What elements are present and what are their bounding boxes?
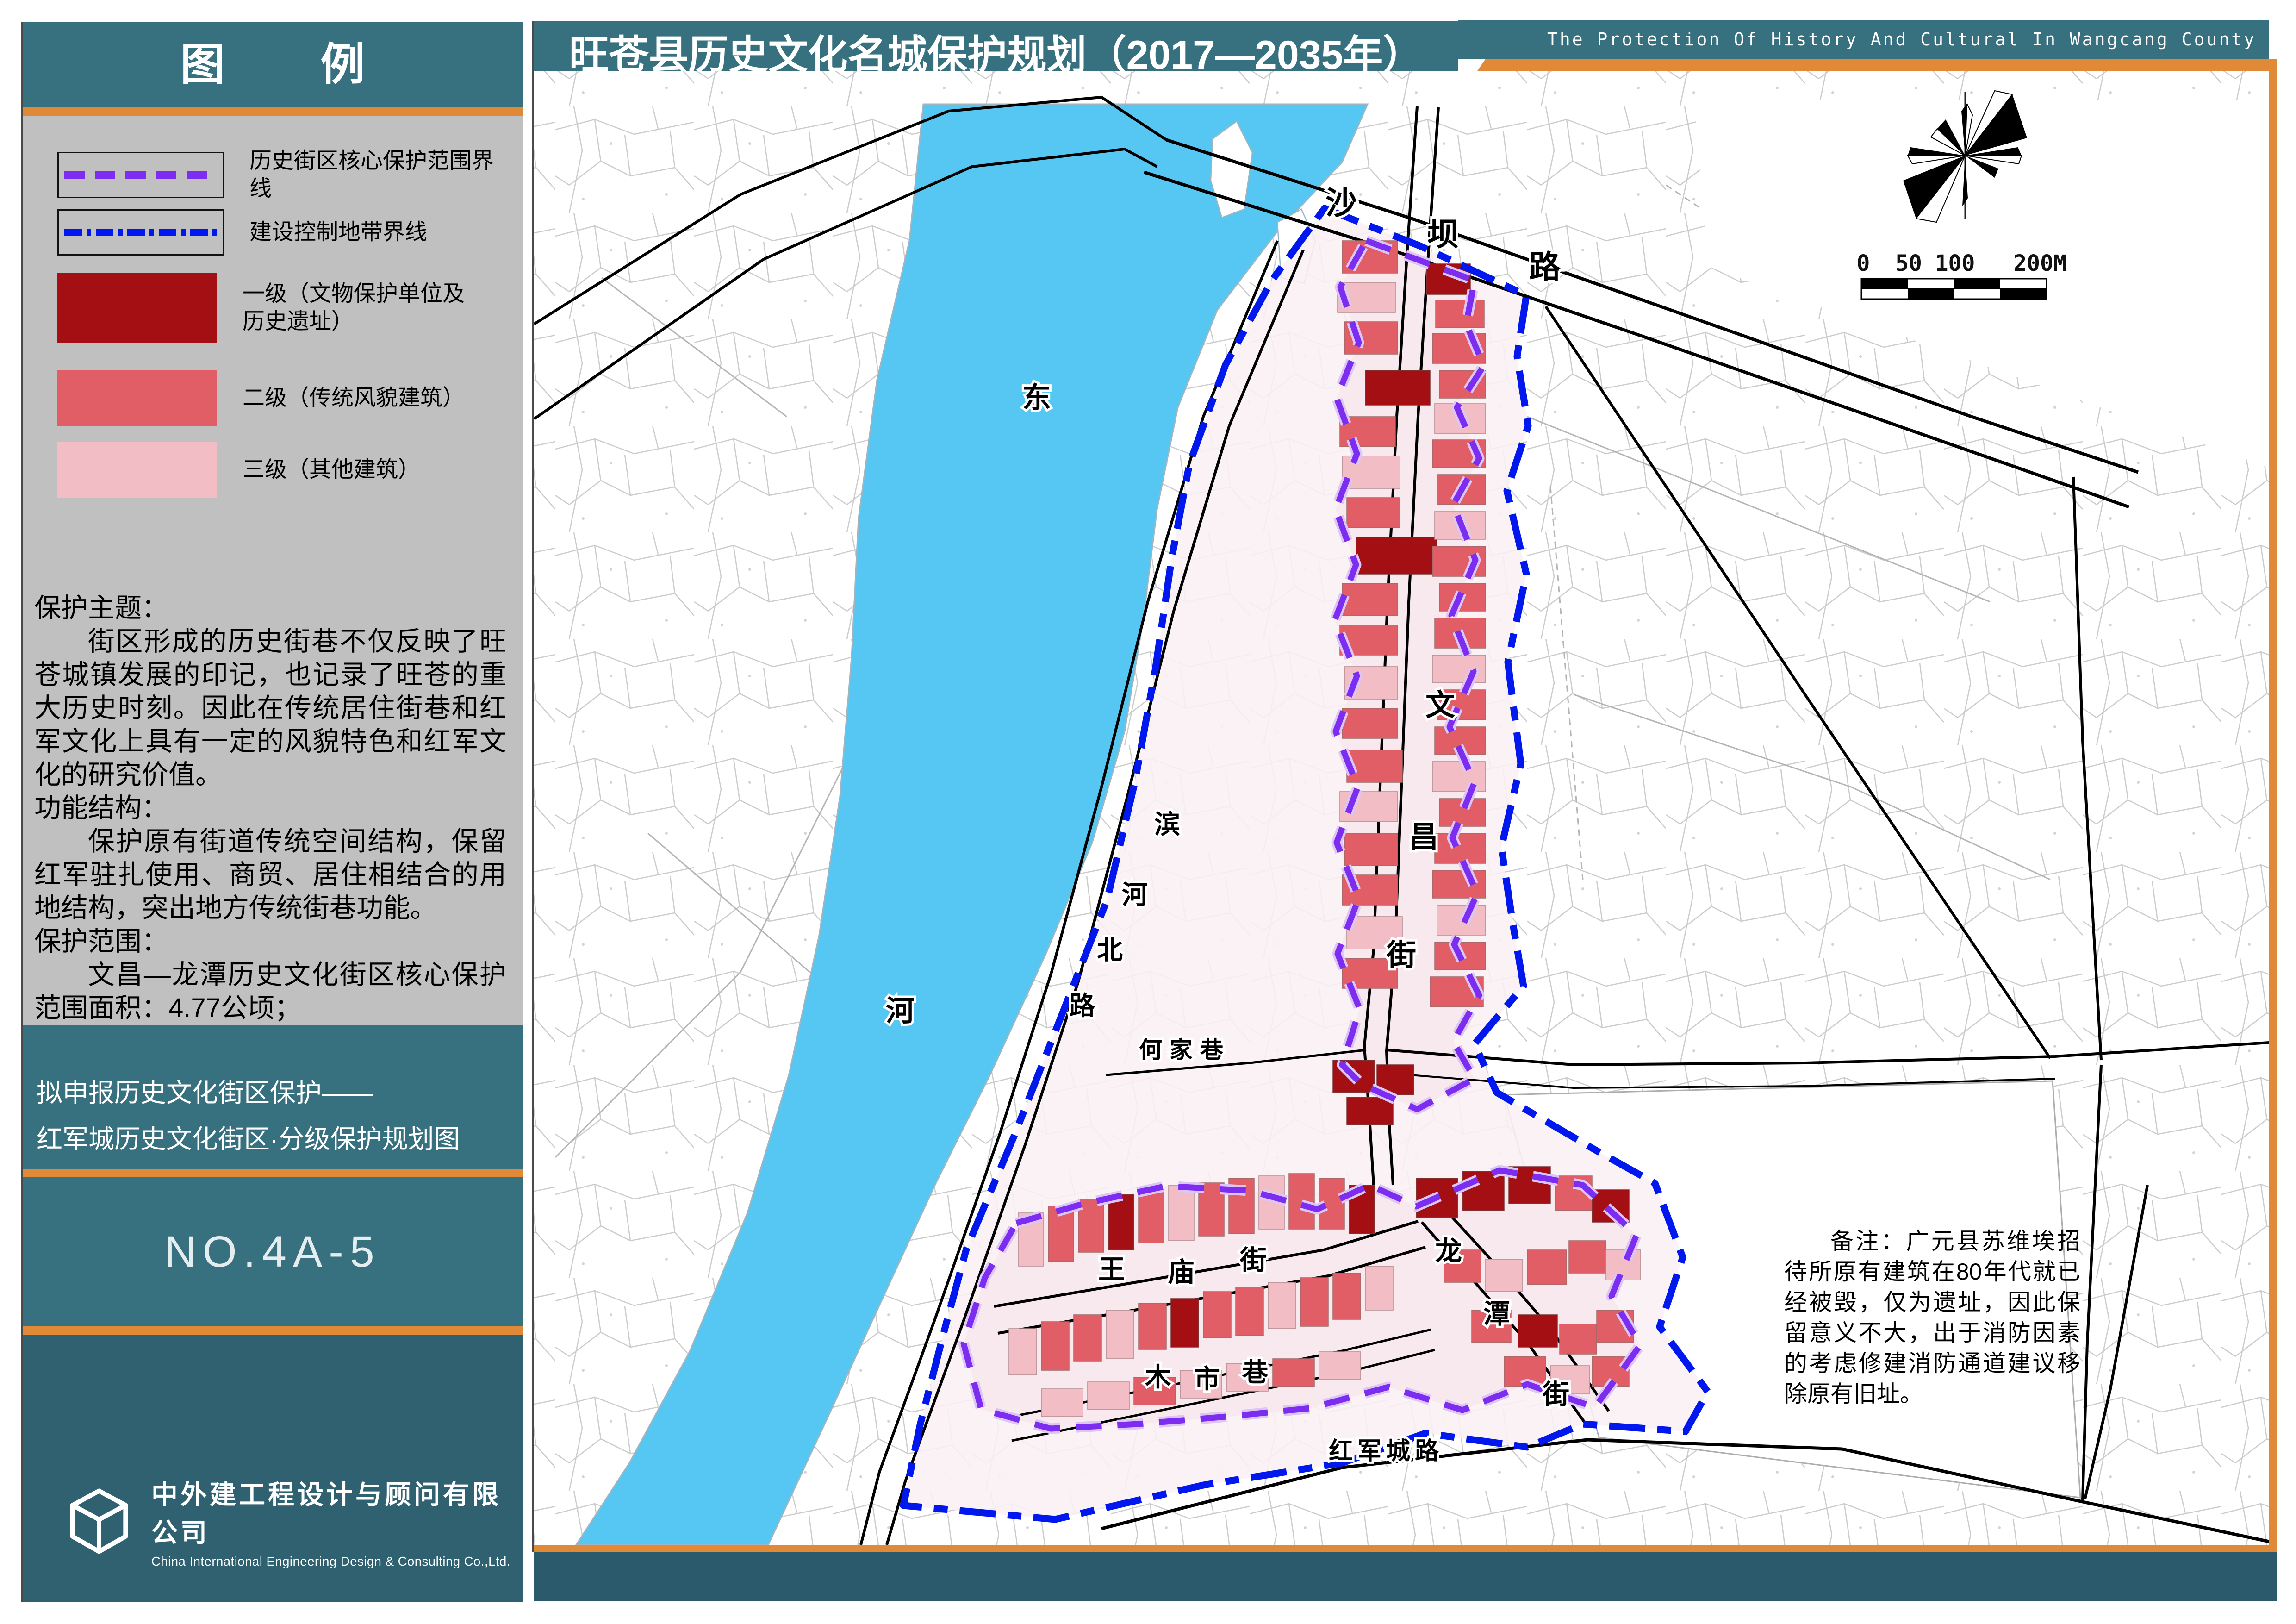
street-label: 街: [1239, 1245, 1267, 1275]
legend-item-label: 三级（其他建筑）: [243, 456, 420, 484]
street-label: 巷: [1242, 1358, 1269, 1387]
footer-bar: [534, 1552, 2277, 1601]
section-paragraph: 街区形成的历史街巷不仅反映了旺苍城镇发展的印记，也记录了旺苍的重大历史时刻。因此…: [34, 625, 506, 792]
street-label: 街: [1386, 938, 1416, 972]
street-label: 河: [1122, 880, 1148, 909]
project-line2: 红军城历史文化街区·分级保护规划图: [37, 1116, 523, 1162]
company-box: 中外建工程设计与顾问有限公司 China International Engin…: [23, 1335, 523, 1602]
legend-item-label: 一级（文物保护单位及历史遗址）: [243, 280, 483, 336]
section-heading: 保护主题：: [34, 592, 506, 625]
section-heading: 功能结构：: [34, 792, 506, 825]
street-label: 昌: [1409, 820, 1438, 854]
orange-divider: [23, 1169, 523, 1177]
street-label: 红军城路: [1329, 1438, 1444, 1465]
company-name-cn: 中外建工程设计与顾问有限公司: [151, 1474, 523, 1549]
project-line1: 拟申报历史文化街区保护——: [37, 1070, 523, 1116]
map-bottom-border: [534, 1545, 2277, 1552]
street-label: 路: [1069, 991, 1095, 1020]
street-label: 北: [1097, 936, 1123, 965]
level3-swatch-icon: [57, 442, 217, 498]
project-title-box: 拟申报历史文化街区保护—— 红军城历史文化街区·分级保护规划图: [23, 1025, 523, 1169]
legend-item-control-boundary: 建设控制地带界线: [57, 209, 427, 256]
street-label: 沙: [1325, 186, 1357, 221]
legend-item-label: 二级（传统风貌建筑）: [243, 384, 465, 412]
street-label: 街: [1542, 1380, 1569, 1410]
map-title-en: The Protection Of History And Cultural I…: [1458, 20, 2269, 59]
legend-title: 图 例: [23, 22, 523, 107]
sheet-number: NO.4A-5: [23, 1177, 523, 1326]
legend-sidebar: 图 例 历史街区核心保护范围界线 建设控制地带界线 一级（文物保护单位及历史遗址…: [21, 22, 521, 1602]
street-label: 滨: [1154, 810, 1180, 839]
company-name-en: China International Engineering Design &…: [151, 1554, 523, 1569]
street-label: 东: [1022, 382, 1051, 414]
street-label: 庙: [1168, 1257, 1195, 1287]
street-label: 坝: [1427, 217, 1459, 252]
street-label: 龙: [1435, 1236, 1462, 1266]
section-paragraph: 文昌—龙潭历史文化街区核心保护范围面积：4.77公顷；: [34, 958, 506, 1025]
scale-tick: 100: [1935, 250, 1975, 276]
legend-item-level3: 三级（其他建筑）: [57, 442, 420, 498]
street-label: 市: [1194, 1364, 1220, 1393]
street-label: 王: [1098, 1255, 1125, 1285]
scale-tick: 200M: [2013, 250, 2067, 276]
legend-item-level1: 一级（文物保护单位及历史遗址）: [57, 273, 483, 343]
legend-item-level2: 二级（传统风貌建筑）: [57, 370, 465, 426]
street-label: 文: [1425, 688, 1455, 722]
legend-item-label: 建设控制地带界线: [249, 219, 427, 246]
map-right-border: [2269, 59, 2277, 1552]
section-heading: 保护范围：: [34, 925, 506, 958]
street-label: 何家巷: [1139, 1037, 1231, 1063]
purple-dashed-line-icon: [57, 152, 224, 198]
section-paragraph: 保护原有街道传统空间结构，保留红军驻扎使用、商贸、居住相结合的用地结构，突出地方…: [34, 825, 506, 925]
level2-swatch-icon: [57, 370, 217, 426]
scale-tick: 0: [1857, 250, 1870, 276]
legend-item-core-boundary: 历史街区核心保护范围界线: [57, 147, 509, 203]
street-label: 河: [886, 995, 915, 1027]
company-cube-icon: [67, 1484, 132, 1558]
orange-divider: [23, 1326, 523, 1335]
street-label: 潭: [1483, 1299, 1510, 1329]
map-note: 备注：广元县苏维埃招待所原有建筑在80年代就已经被毁，仅为遗址，因此保留意义不大…: [1784, 1226, 2080, 1409]
legend-panel: 历史街区核心保护范围界线 建设控制地带界线 一级（文物保护单位及历史遗址） 二级…: [23, 116, 523, 1039]
company-logo-row: 中外建工程设计与顾问有限公司 China International Engin…: [67, 1474, 523, 1569]
orange-divider: [23, 107, 523, 116]
street-label: 路: [1529, 250, 1561, 285]
legend-item-label: 历史街区核心保护范围界线: [249, 147, 509, 203]
level1-swatch-icon: [57, 273, 217, 343]
street-label: 木: [1145, 1362, 1171, 1392]
blue-dashdot-line-icon: [57, 209, 224, 256]
scale-tick: 50: [1895, 250, 1922, 276]
